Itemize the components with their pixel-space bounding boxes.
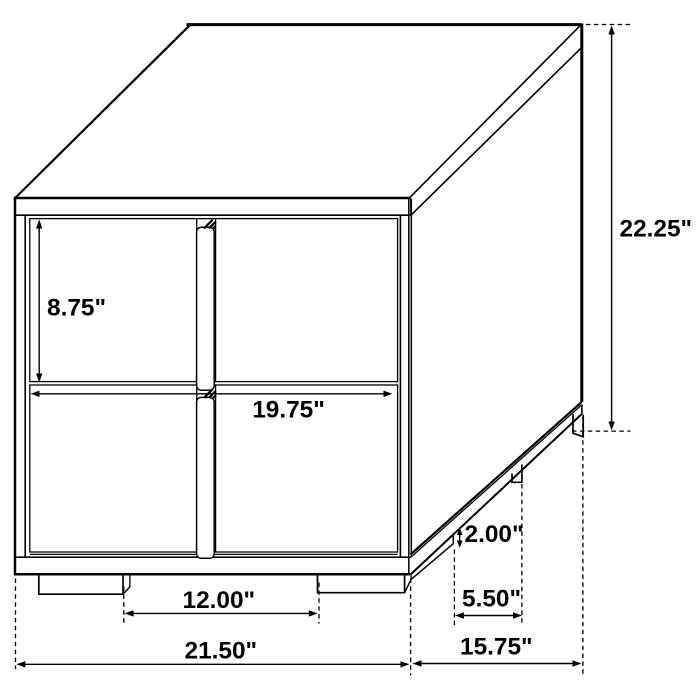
svg-text:5.50": 5.50"	[462, 586, 521, 613]
svg-text:8.75": 8.75"	[47, 295, 106, 322]
svg-text:15.75": 15.75"	[460, 634, 533, 661]
svg-text:19.75": 19.75"	[252, 397, 325, 424]
svg-text:12.00": 12.00"	[183, 587, 256, 614]
svg-text:22.25": 22.25"	[620, 216, 693, 243]
svg-text:21.50": 21.50"	[185, 638, 258, 665]
svg-text:2.00": 2.00"	[465, 521, 524, 548]
